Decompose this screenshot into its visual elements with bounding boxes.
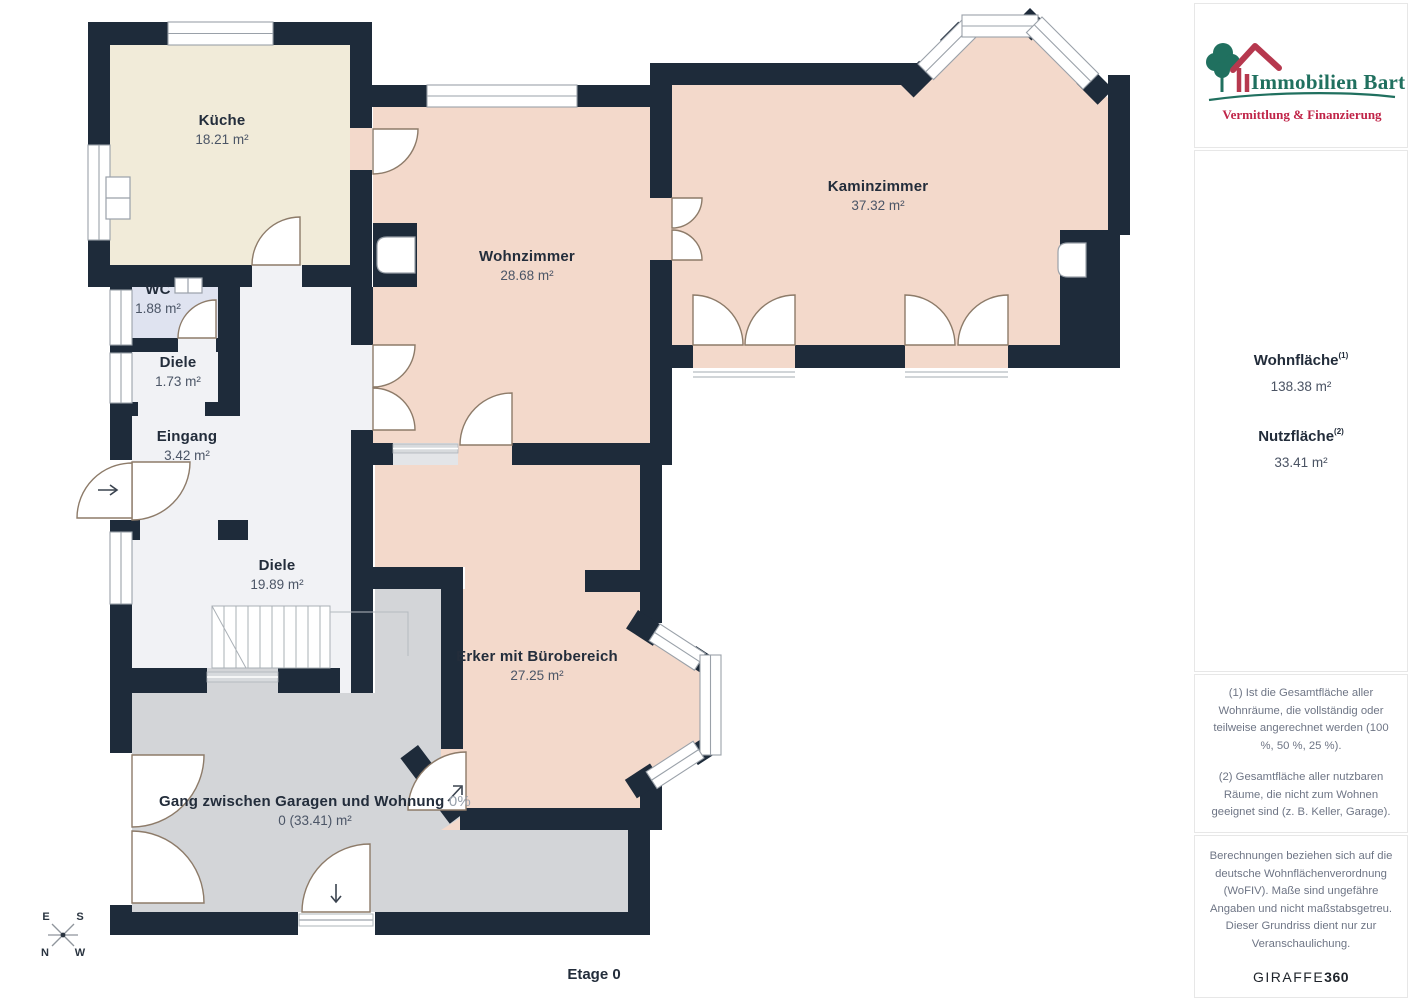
room-gang-right-fill [441, 830, 628, 912]
room-name: Kaminzimmer [828, 178, 929, 195]
footnote-1: (1) Ist die Gesamtfläche aller Wohnräume… [1209, 685, 1393, 755]
room-label-kueche: Küche 18.21 m² [195, 112, 248, 147]
room-percent: 0% [449, 793, 471, 810]
compass-south-label: S [76, 911, 83, 923]
room-area: 1.73 m² [155, 374, 201, 389]
room-name-text: Gang zwischen Garagen und Wohnung [159, 793, 445, 810]
stat-label: Nutzfläche(2) [1258, 428, 1344, 445]
room-area: 19.89 m² [250, 577, 303, 592]
footnote-2: (2) Gesamtfläche aller nutzbaren Räume, … [1209, 769, 1393, 822]
stat-value: 138.38 m² [1254, 379, 1349, 394]
room-area: 3.42 m² [157, 448, 218, 463]
fireplace-icon [1058, 243, 1086, 277]
room-area: 37.32 m² [828, 198, 929, 213]
room-name: WC [135, 281, 181, 298]
room-name: Gang zwischen Garagen und Wohnung 0% [159, 793, 471, 810]
wohnflaeche-stat: Wohnfläche(1) 138.38 m² [1254, 352, 1349, 394]
brand-suffix: 360 [1324, 969, 1349, 985]
compass-north-label: N [41, 947, 49, 959]
logo-underline [1209, 93, 1395, 100]
room-name: Diele [250, 557, 303, 574]
floorplan-page: Küche 18.21 m² WC 1.88 m² Diele 1.73 m² … [0, 0, 1414, 1000]
logo-title: Immobilien Bart [1251, 70, 1405, 94]
radiator-icon [377, 237, 415, 273]
stat-label-text: Nutzfläche [1258, 428, 1334, 445]
room-area: 28.68 m² [479, 268, 575, 283]
disclaimer-text: Berechnungen beziehen sich auf die deuts… [1209, 848, 1393, 953]
floor-level-label: Etage 0 [567, 966, 620, 983]
area-stats-panel: Wohnfläche(1) 138.38 m² Nutzfläche(2) 33… [1194, 150, 1408, 672]
stat-footnote-ref: (1) [1338, 351, 1348, 360]
compass-west-label: W [75, 947, 85, 959]
disclaimer-panel: Berechnungen beziehen sich auf die deuts… [1194, 835, 1408, 998]
room-label-eingang: Eingang 3.42 m² [157, 428, 218, 463]
room-label-gang: Gang zwischen Garagen und Wohnung 0% 0 (… [159, 793, 471, 828]
room-name: Diele [155, 354, 201, 371]
room-area: 18.21 m² [195, 132, 248, 147]
room-name: Wohnzimmer [479, 248, 575, 265]
room-label-kaminzimmer: Kaminzimmer 37.32 m² [828, 178, 929, 213]
room-area: 0 (33.41) m² [159, 813, 471, 828]
compass-east-label: E [42, 911, 49, 923]
room-area: 1.88 m² [135, 301, 181, 316]
nutzflaeche-stat: Nutzfläche(2) 33.41 m² [1258, 428, 1344, 470]
room-name: Küche [195, 112, 248, 129]
giraffe360-brand: GIRAFFE360 [1253, 969, 1349, 985]
brand-name: GIRAFFE [1253, 969, 1324, 985]
logo-panel: Immobilien Bart Vermittlung & Finanzieru… [1194, 3, 1408, 148]
logo-subtitle: Vermittlung & Finanzierung [1222, 107, 1382, 122]
room-fills [110, 30, 1108, 912]
stat-footnote-ref: (2) [1334, 427, 1344, 436]
room-label-wc: WC 1.88 m² [135, 281, 181, 316]
room-label-wohnzimmer: Wohnzimmer 28.68 m² [479, 248, 575, 283]
stat-label: Wohnfläche(1) [1254, 352, 1349, 369]
room-label-diele-klein: Diele 1.73 m² [155, 354, 201, 389]
footnotes-panel: (1) Ist die Gesamtfläche aller Wohnräume… [1194, 674, 1408, 833]
room-kueche-fill [110, 45, 350, 265]
stat-value: 33.41 m² [1258, 455, 1344, 470]
room-name: Erker mit Bürobereich [456, 648, 618, 665]
room-area: 27.25 m² [456, 668, 618, 683]
stat-label-text: Wohnfläche [1254, 352, 1339, 369]
room-label-diele-gross: Diele 19.89 m² [250, 557, 303, 592]
room-label-erker: Erker mit Bürobereich 27.25 m² [456, 648, 618, 683]
compass-icon [48, 924, 78, 946]
company-logo: Immobilien Bart Vermittlung & Finanzieru… [1195, 4, 1409, 147]
room-name: Eingang [157, 428, 218, 445]
